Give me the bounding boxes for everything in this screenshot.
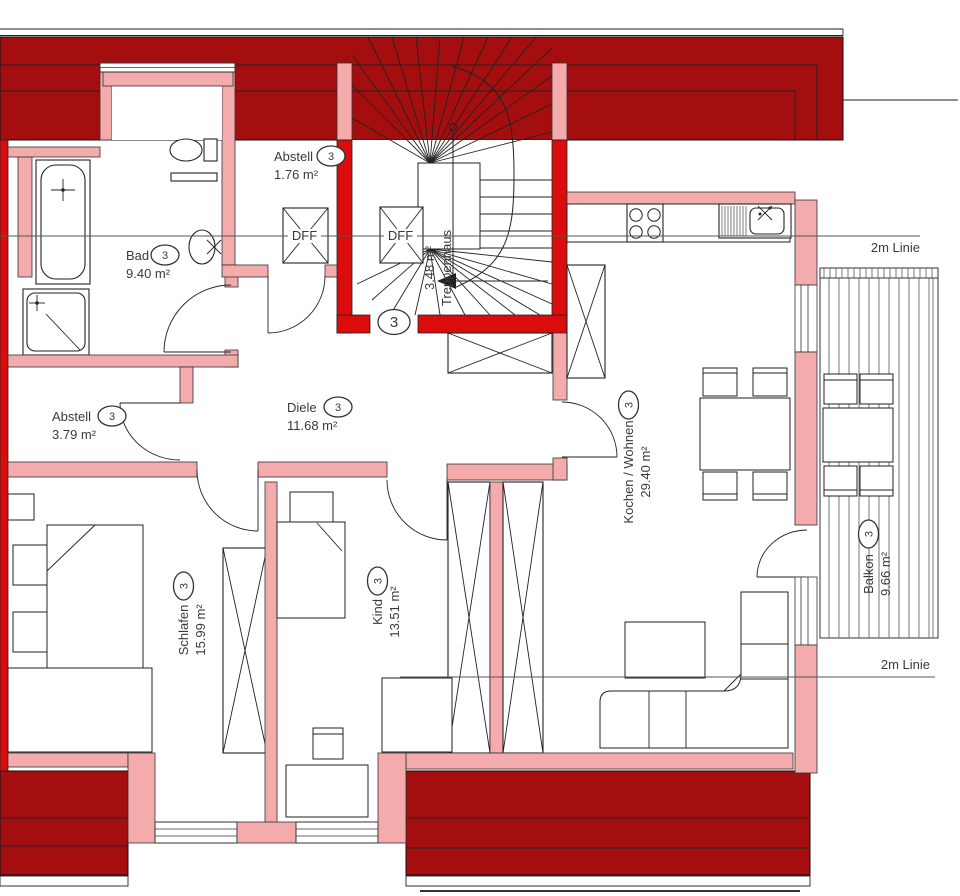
eaves-strip-left [0, 876, 128, 886]
svg-text:Diele: Diele [287, 400, 317, 415]
svg-text:9.40 m²: 9.40 m² [126, 266, 171, 281]
kitchen-sink [719, 204, 791, 238]
bedroom [8, 494, 152, 767]
balcony-door [757, 530, 807, 577]
svg-text:29.40 m²: 29.40 m² [638, 446, 653, 498]
guide-label-top: 2m Linie [871, 240, 920, 255]
desk-chair [313, 728, 343, 759]
sideboard [286, 765, 368, 817]
shaft-vertical-2 [503, 482, 543, 753]
svg-text:11.68 m²: 11.68 m² [287, 418, 338, 433]
svg-text:Abstell: Abstell [274, 149, 313, 164]
svg-text:3: 3 [328, 151, 334, 163]
skylight-label-1: DFF [292, 228, 317, 243]
wall-bedroom-child [265, 482, 277, 823]
balcony-railing-hatch [820, 268, 938, 278]
svg-text:Treppenhaus: Treppenhaus [439, 229, 454, 306]
svg-text:Kochen / Wohnen: Kochen / Wohnen [621, 420, 636, 523]
toilet [170, 139, 217, 161]
svg-text:3: 3 [624, 402, 636, 408]
window-east-1 [795, 285, 817, 352]
dormer-window-2 [296, 822, 378, 843]
svg-text:3: 3 [179, 583, 191, 589]
room-label-bathroom: Bad 3 9.40 m² [126, 245, 179, 281]
child-bed [277, 492, 345, 618]
skylight-label-2: DFF [388, 228, 413, 243]
living-room-door [562, 402, 617, 457]
room-label-balcony: Balkon 3 9.66 m² [859, 520, 894, 596]
window-east-2 [795, 577, 817, 645]
svg-text:Abstell: Abstell [52, 409, 91, 424]
svg-text:9.66 m²: 9.66 m² [878, 551, 893, 596]
storage-large-door [120, 403, 180, 460]
shaft-horizontal [448, 333, 552, 373]
shaft-bedroom [223, 548, 267, 753]
shower [23, 289, 89, 355]
room-label-kitchen-living: Kochen / Wohnen 3 29.40 m² [619, 391, 654, 524]
dormer-window-1 [155, 822, 237, 843]
desk [382, 678, 452, 752]
svg-text:3: 3 [864, 531, 876, 537]
stair-wall-bottom [418, 315, 567, 333]
svg-text:3.79 m²: 3.79 m² [52, 427, 97, 442]
guide-label-bottom: 2m Linie [881, 657, 930, 672]
balcony-furniture [823, 374, 893, 496]
double-bed [47, 525, 143, 668]
bedroom-door [197, 470, 258, 531]
svg-text:Balkon: Balkon [861, 554, 876, 594]
svg-text:3: 3 [162, 250, 168, 262]
svg-text:Bad: Bad [126, 248, 149, 263]
room-label-storage-small: Abstell 3 1.76 m² [274, 146, 345, 182]
svg-text:Kind: Kind [370, 599, 385, 625]
floor-plan-drawing: DFF DFF 3 Abstell 3 1.76 m² Bad 3 9.40 m… [0, 0, 960, 896]
room-label-child-room: Kind 3 13.51 m² [368, 567, 403, 638]
roof-band-bottom-right [406, 771, 810, 875]
svg-text:3: 3 [335, 402, 341, 414]
svg-text:15.99 m²: 15.99 m² [193, 604, 208, 656]
coffee-table [625, 622, 705, 678]
svg-text:3: 3 [109, 411, 115, 423]
dresser [8, 494, 34, 520]
dining-table [700, 368, 790, 500]
bath-shelf [171, 173, 217, 181]
party-wall-left [0, 140, 8, 771]
svg-text:3.48 m²: 3.48 m² [422, 245, 437, 290]
bathroom-door [164, 285, 231, 352]
svg-text:1.76 m²: 1.76 m² [274, 167, 319, 182]
room-label-storage-large: Abstell 3 3.79 m² [52, 406, 126, 442]
room-label-bedroom: Schlafen 3 15.99 m² [174, 572, 209, 656]
svg-text:3: 3 [373, 578, 385, 584]
storage-small [222, 265, 337, 333]
apartment-number-badge: 3 [390, 314, 398, 331]
bathtub [36, 160, 90, 284]
svg-text:13.51 m²: 13.51 m² [387, 586, 402, 638]
storage-small-door [268, 276, 325, 333]
eaves-strip-right [406, 876, 810, 886]
nightstand-1 [13, 545, 47, 585]
svg-text:Schlafen: Schlafen [176, 605, 191, 656]
balcony-table [823, 408, 893, 462]
room-label-hall: Diele 3 11.68 m² [287, 397, 352, 433]
child-room-door [387, 480, 447, 540]
wardrobe [8, 668, 152, 752]
washbasin [189, 230, 221, 264]
roof-band-bottom-left [0, 771, 128, 875]
shaft-kitchen [567, 265, 605, 378]
shaft-vertical-1 [448, 482, 490, 753]
floor-plan: DFF DFF 3 Abstell 3 1.76 m² Bad 3 9.40 m… [0, 0, 960, 896]
nightstand-2 [13, 612, 47, 652]
